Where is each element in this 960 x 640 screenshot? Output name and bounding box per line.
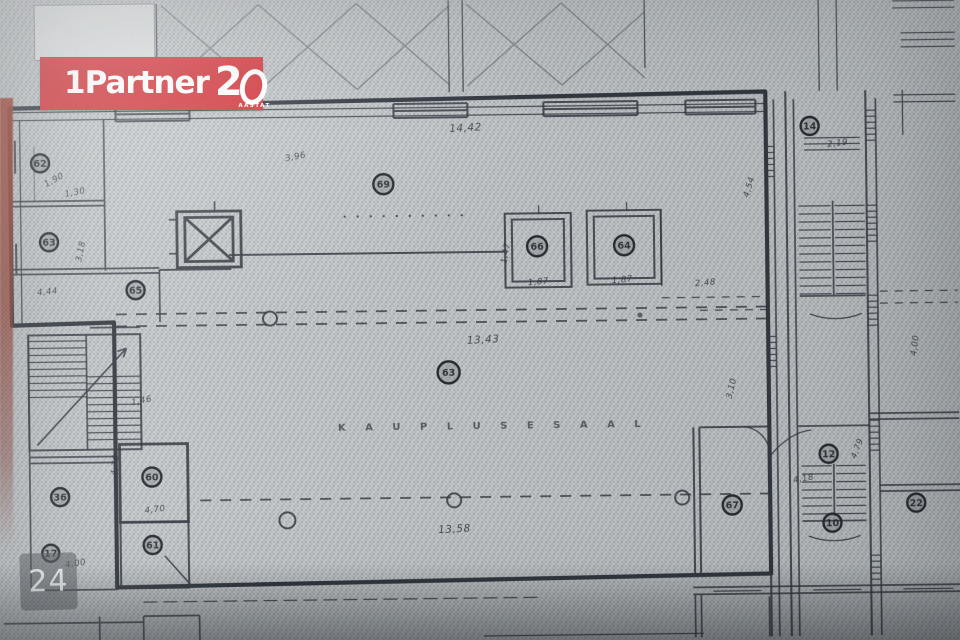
svg-text:1,87: 1,87 [612,274,634,286]
svg-text:4,54: 4,54 [742,176,758,199]
svg-text:65: 65 [129,286,142,297]
page-number-badge: 24 [19,552,77,610]
svg-text:67: 67 [726,500,739,511]
bottom-right-rooms [692,309,771,574]
svg-text:66: 66 [530,242,544,253]
bottom-left-rooms [119,444,193,589]
svg-text:1,87: 1,87 [528,276,550,288]
svg-text:10: 10 [826,518,840,529]
svg-text:3,18: 3,18 [74,240,88,263]
room-circle: 22 [907,494,925,512]
room-circle: 66 [527,236,547,256]
elevator-icon [169,201,242,268]
svg-text:22: 22 [910,498,923,509]
unit-boundary [9,91,771,588]
room-circle: 12 [820,445,838,463]
right-unit-walls [865,89,960,635]
room-circle: 63 [40,233,58,251]
svg-text:14: 14 [803,121,817,132]
svg-text:61: 61 [146,540,159,551]
stair-right-top [798,137,866,319]
svg-text:4,18: 4,18 [792,472,815,486]
logo-anniversary-label: AASTAT [238,103,270,109]
svg-text:13,43: 13,43 [467,333,500,347]
scanned-floor-plan-photo: 14,42 3,96 1,90 1,30 3,18 4,44 1,46 13,4… [0,0,960,640]
room-circle: 14 [801,117,819,135]
logo-number-2: 2 [215,63,241,101]
svg-text:14,42: 14,42 [449,121,482,135]
svg-text:69: 69 [377,180,390,191]
room-circle: 36 [51,488,69,506]
svg-text:2,48: 2,48 [695,277,717,289]
svg-text:4,00: 4,00 [909,334,922,356]
room-circle: 67 [723,495,742,514]
svg-text:13,58: 13,58 [438,523,471,537]
svg-text:63: 63 [442,368,455,379]
page-number: 24 [28,563,69,599]
svg-text:4,79: 4,79 [849,437,866,460]
red-edge-strip [0,98,13,548]
logo-brand-text: 1Partner [64,68,209,99]
logo-ring-icon [236,66,270,107]
svg-text:3,10: 3,10 [725,377,740,400]
svg-text:3,96: 3,96 [284,150,307,164]
svg-text:1,47: 1,47 [499,242,513,265]
svg-text:36: 36 [53,493,67,504]
svg-text:1,46: 1,46 [130,394,153,408]
svg-text:4,44: 4,44 [37,286,59,298]
logo-anniversary: 2 AASTAT [215,63,267,105]
exterior-walls [9,99,768,323]
partner-logo: 1Partner 2 AASTAT [40,57,263,110]
room-circle: 62 [31,154,49,172]
hall-label: K A U P L U S E S A A L [338,419,649,434]
room-circle: 69 [373,174,393,194]
svg-text:1,30: 1,30 [64,186,86,200]
svg-text:12: 12 [822,449,835,460]
room-circle: 60 [142,467,161,486]
room-circle: 10 [823,514,841,532]
svg-text:60: 60 [145,472,159,483]
mid-dashed-axis [116,306,766,328]
svg-text:2,19: 2,19 [827,137,849,149]
room-circle: 65 [127,281,145,299]
svg-text:62: 62 [33,159,46,170]
svg-text:63: 63 [42,238,55,249]
svg-text:1,90: 1,90 [43,171,66,190]
room-circle: 61 [144,536,162,554]
lower-dashed-axis [200,489,768,529]
svg-text:4,70: 4,70 [144,504,166,516]
room-circle: 64 [614,235,634,255]
bottom-walls [3,584,960,640]
svg-text:64: 64 [617,241,631,252]
room-circle: 63 [438,361,460,383]
